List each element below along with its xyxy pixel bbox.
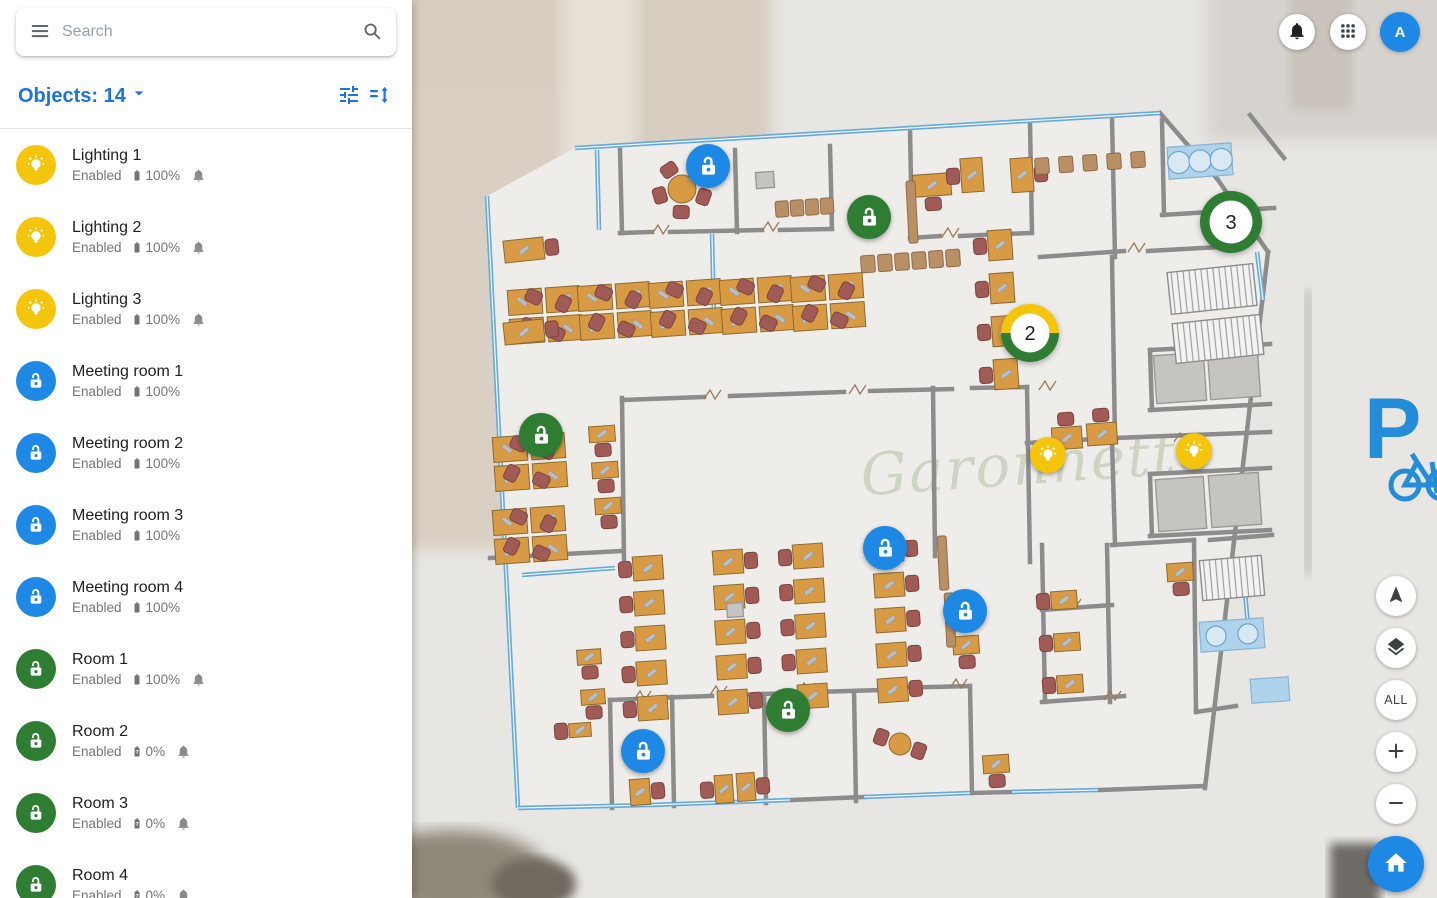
apps-grid-icon <box>1339 22 1357 43</box>
filter-button[interactable] <box>334 81 364 111</box>
list-item[interactable]: Meeting room 2 Enabled 100% <box>0 417 412 489</box>
list-item[interactable]: Lighting 2 Enabled 100% <box>0 201 412 273</box>
battery-level: 100% <box>146 240 181 255</box>
battery-level: 100% <box>146 168 181 183</box>
search-input[interactable] <box>60 22 352 42</box>
battery-icon <box>131 529 143 542</box>
object-status: Enabled <box>72 744 122 759</box>
svg-text:P: P <box>1364 381 1421 477</box>
cluster-marker[interactable]: 2 <box>1001 304 1059 362</box>
objects-count-label: Objects: 14 <box>18 85 126 108</box>
object-title: Meeting room 1 <box>72 363 183 381</box>
object-status: Enabled <box>72 600 122 615</box>
search-bar <box>16 8 396 56</box>
object-title: Room 3 <box>72 795 191 813</box>
battery-level: 0% <box>146 744 166 759</box>
svg-text:3: 3 <box>1225 212 1236 234</box>
apps-button[interactable] <box>1330 14 1366 50</box>
lock-icon <box>16 361 56 401</box>
lock-icon <box>16 649 56 689</box>
svg-text:2: 2 <box>1024 323 1035 345</box>
list-item[interactable]: Meeting room 1 Enabled 100% <box>0 345 412 417</box>
battery-level: 100% <box>146 456 181 471</box>
bell-icon <box>191 240 206 255</box>
bulb-icon <box>16 145 56 185</box>
show-all-button[interactable]: ALL <box>1376 680 1416 720</box>
object-title: Lighting 3 <box>72 291 206 309</box>
battery-icon: ? <box>131 745 143 758</box>
map-canvas[interactable]: Garonnette P 3 2 <box>412 0 1437 898</box>
object-list: Lighting 1 Enabled 100% Lighting 2 Enabl… <box>0 129 412 898</box>
lock-pin[interactable] <box>847 195 891 239</box>
lock-icon <box>16 433 56 473</box>
battery-icon <box>131 241 143 254</box>
lock-pin[interactable] <box>621 729 665 773</box>
plus-icon <box>1385 740 1407 765</box>
lock-icon <box>16 577 56 617</box>
object-status: Enabled <box>72 528 122 543</box>
bell-icon <box>176 816 191 831</box>
list-item[interactable]: Lighting 1 Enabled 100% <box>0 129 412 201</box>
chevron-down-icon <box>129 83 149 109</box>
battery-icon <box>131 313 143 326</box>
bell-icon <box>191 168 206 183</box>
lock-pin[interactable] <box>766 688 810 732</box>
object-status: Enabled <box>72 816 122 831</box>
compass-button[interactable] <box>1376 576 1416 616</box>
lighting-pin[interactable] <box>1176 433 1212 469</box>
bulb-icon <box>16 217 56 257</box>
object-status: Enabled <box>72 672 122 687</box>
battery-icon: ? <box>131 817 143 830</box>
zoom-in-button[interactable] <box>1376 732 1416 772</box>
hamburger-icon <box>29 20 51 45</box>
object-title: Room 2 <box>72 723 191 741</box>
battery-level: 0% <box>146 816 166 831</box>
object-title: Lighting 2 <box>72 219 206 237</box>
object-title: Meeting room 4 <box>72 579 183 597</box>
bulb-icon <box>16 289 56 329</box>
layers-icon <box>1385 636 1407 661</box>
sort-button[interactable] <box>364 81 394 111</box>
objects-count-dropdown[interactable]: Objects: 14 <box>18 83 149 109</box>
list-item[interactable]: Meeting room 3 Enabled 100% <box>0 489 412 561</box>
object-title: Room 1 <box>72 651 206 669</box>
lock-pin[interactable] <box>686 144 730 188</box>
home-button[interactable] <box>1368 836 1424 892</box>
layers-button[interactable] <box>1376 628 1416 668</box>
sort-icon <box>367 83 391 110</box>
search-icon <box>361 20 383 45</box>
battery-icon <box>131 385 143 398</box>
cluster-marker[interactable]: 3 <box>1200 191 1262 253</box>
object-title: Lighting 1 <box>72 147 206 165</box>
battery-level: 100% <box>146 384 181 399</box>
lock-icon <box>16 721 56 761</box>
object-status: Enabled <box>72 384 122 399</box>
navigation-arrow-icon <box>1385 584 1407 609</box>
home-icon <box>1383 850 1409 879</box>
object-status: Enabled <box>72 240 122 255</box>
battery-level: 100% <box>146 600 181 615</box>
zoom-out-button[interactable] <box>1376 784 1416 824</box>
account-avatar[interactable]: A <box>1380 12 1420 52</box>
object-title: Meeting room 3 <box>72 507 183 525</box>
list-item[interactable]: Room 2 Enabled ? 0% <box>0 705 412 777</box>
search-button[interactable] <box>352 12 392 52</box>
object-status: Enabled <box>72 888 122 898</box>
list-item[interactable]: Lighting 3 Enabled 100% <box>0 273 412 345</box>
battery-icon <box>131 601 143 614</box>
lock-icon <box>16 793 56 833</box>
battery-level: 100% <box>146 528 181 543</box>
battery-icon <box>131 673 143 686</box>
object-status: Enabled <box>72 312 122 327</box>
floor-plan: Garonnette P <box>412 0 1437 898</box>
objects-header: Objects: 14 <box>0 72 412 120</box>
menu-button[interactable] <box>20 12 60 52</box>
lock-pin[interactable] <box>943 589 987 633</box>
list-item[interactable]: Room 4 Enabled ? 0% <box>0 849 412 898</box>
bell-icon <box>191 312 206 327</box>
lock-icon <box>16 505 56 545</box>
bell-icon <box>176 744 191 759</box>
bell-icon <box>1287 21 1307 44</box>
object-status: Enabled <box>72 456 122 471</box>
list-item[interactable]: Room 1 Enabled 100% <box>0 633 412 705</box>
lock-pin[interactable] <box>863 526 907 570</box>
notifications-button[interactable] <box>1279 14 1315 50</box>
list-item[interactable]: Meeting room 4 Enabled 100% <box>0 561 412 633</box>
battery-level: 100% <box>146 312 181 327</box>
bell-icon <box>176 888 191 898</box>
list-item[interactable]: Room 3 Enabled ? 0% <box>0 777 412 849</box>
tune-icon <box>337 83 361 110</box>
lock-pin[interactable] <box>519 413 563 457</box>
bike-parking-watermark: P <box>1364 381 1437 499</box>
lighting-pin[interactable] <box>1030 437 1066 473</box>
bell-icon <box>191 672 206 687</box>
all-label: ALL <box>1384 693 1407 707</box>
object-title: Meeting room 2 <box>72 435 183 453</box>
battery-icon: ? <box>131 889 143 898</box>
lock-icon <box>16 865 56 898</box>
battery-icon <box>131 169 143 182</box>
sidebar: Objects: 14 Lighting 1 Enabled 100% <box>0 0 412 898</box>
battery-level: 100% <box>146 672 181 687</box>
minus-icon <box>1385 792 1407 817</box>
battery-level: 0% <box>146 888 166 898</box>
battery-icon <box>131 457 143 470</box>
object-status: Enabled <box>72 168 122 183</box>
object-title: Room 4 <box>72 867 191 885</box>
avatar-letter: A <box>1395 24 1406 41</box>
